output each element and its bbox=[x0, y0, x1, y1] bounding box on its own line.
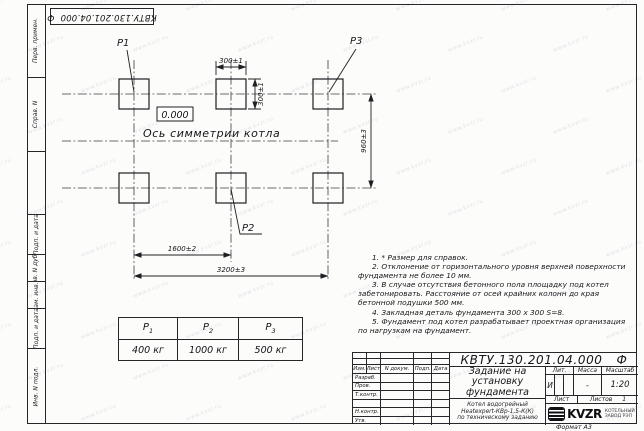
signature-cell bbox=[432, 391, 449, 399]
title-block-right-section: Лит. Масса Масштаб И - 1:20 Лист Листов … bbox=[546, 367, 638, 425]
signature-label: Пров. bbox=[353, 383, 381, 391]
revision-cell bbox=[432, 359, 449, 364]
title-block: Изм. Лист N докум. Подп. Дата Разраб. Пр… bbox=[352, 352, 637, 424]
load-value-p2: 1000 кг bbox=[178, 340, 239, 361]
side-stamp-column: Перв. примен. Справ. N Подп. и дата Инв.… bbox=[27, 4, 45, 424]
top-doc-number-stamp: КВТУ.130.201.04.000 Ф bbox=[50, 8, 154, 25]
notes-block: 1. * Размер для справок. 2. Отклонение о… bbox=[358, 253, 632, 335]
signature-cell bbox=[414, 374, 432, 382]
side-stamp-inv-dubl: Инв. N дубл. bbox=[27, 255, 45, 282]
signature-cell bbox=[414, 391, 432, 399]
signature-row-nkontr: Н.контр. bbox=[353, 408, 449, 417]
signature-cell bbox=[414, 400, 432, 408]
load-table: P1 P2 P3 400 кг 1000 кг 500 кг bbox=[118, 317, 303, 361]
signature-label: Н.контр. bbox=[353, 408, 381, 416]
load-header-p1: P1 bbox=[119, 318, 178, 340]
revision-header-docnum: N докум. bbox=[381, 365, 415, 373]
lit-mass-scale-header: Лит. Масса Масштаб bbox=[546, 367, 638, 375]
signature-cell bbox=[381, 408, 415, 416]
load-table-header-row: P1 P2 P3 bbox=[119, 318, 303, 340]
lit-mass-scale-values: И - 1:20 bbox=[546, 375, 638, 396]
subtitle-line: Котел водогрейный bbox=[467, 402, 528, 409]
revision-header-list: Лист bbox=[367, 365, 381, 373]
signature-label: Т.контр. bbox=[353, 391, 381, 399]
inner-frame-line bbox=[45, 4, 46, 424]
side-stamp-podp-data-1: Подп. и дата bbox=[27, 215, 45, 255]
lit-cell-2 bbox=[555, 375, 564, 395]
doc-number-suffix: Ф bbox=[617, 353, 628, 367]
side-stamp-label: Взам. инв. N bbox=[33, 282, 40, 309]
signature-cell bbox=[432, 374, 449, 382]
watermark-text: www.kvzr.ru bbox=[0, 75, 12, 95]
signature-cell bbox=[432, 417, 449, 426]
load-table-value-row: 400 кг 1000 кг 500 кг bbox=[119, 340, 303, 361]
load-value-p3: 500 кг bbox=[239, 340, 303, 361]
revision-cell bbox=[414, 353, 432, 358]
sheets-count: Листов 1 bbox=[578, 396, 638, 403]
sheet-label: Лист bbox=[546, 396, 578, 403]
signature-cell bbox=[414, 408, 432, 416]
revision-cell bbox=[414, 359, 432, 364]
signature-cell bbox=[414, 383, 432, 391]
revision-cell bbox=[353, 353, 367, 358]
note-1: 1. * Размер для справок. bbox=[358, 253, 632, 262]
signature-cell bbox=[381, 383, 415, 391]
signature-cell bbox=[381, 417, 415, 426]
revision-cell bbox=[367, 359, 381, 364]
side-stamp-label: Перв. примен. bbox=[33, 18, 40, 63]
side-stamp-label: Справ. N bbox=[33, 101, 40, 128]
note-4: 4. Закладная деталь фундамента 300 х 300… bbox=[358, 308, 632, 317]
manufacturer-logo-row: KVZR КОТЕЛЬНЫЙ ЗАВОД РЭП bbox=[546, 404, 638, 424]
signature-cell bbox=[432, 383, 449, 391]
signature-cell bbox=[381, 400, 415, 408]
revision-cell bbox=[367, 353, 381, 358]
subtitle-line: по техническому заданию bbox=[457, 415, 538, 422]
lit-value: И bbox=[546, 375, 555, 395]
side-stamp-label: Подп. и дата bbox=[33, 309, 40, 349]
signature-label: Утв. bbox=[353, 417, 381, 426]
side-stamp-label: Подп. и дата bbox=[33, 215, 40, 255]
revision-cell bbox=[353, 359, 367, 364]
logo-caption-line: ЗАВОД РЭП bbox=[605, 414, 635, 419]
signature-cell bbox=[432, 408, 449, 416]
side-stamp-perv-primen: Перв. примен. bbox=[27, 4, 45, 78]
side-stamp-label: Инв. N дубл. bbox=[33, 255, 40, 282]
signature-row-tkontr: Т.контр. bbox=[353, 391, 449, 400]
top-doc-number-text: КВТУ.130.201.04.000 Ф bbox=[47, 12, 157, 22]
sheets-label: Листов bbox=[590, 396, 612, 403]
load-value-p1: 400 кг bbox=[119, 340, 178, 361]
sheet-count-row: Лист Листов 1 bbox=[546, 396, 638, 404]
load-header-p2: P2 bbox=[178, 318, 239, 340]
mass-value: - bbox=[574, 375, 602, 395]
side-stamp-vzam-inv: Взам. инв. N bbox=[27, 282, 45, 309]
signature-label bbox=[353, 400, 381, 408]
watermark-text: www.kvzr.ru bbox=[0, 321, 12, 341]
watermark-text: www.kvzr.ru bbox=[0, 0, 12, 13]
mass-label: Масса bbox=[574, 367, 602, 374]
note-3: 3. В случае отсутствия бетонного пола пл… bbox=[358, 280, 632, 307]
revision-header-izm: Изм. bbox=[353, 365, 367, 373]
signature-label: Разраб. bbox=[353, 374, 381, 382]
signature-cell bbox=[432, 400, 449, 408]
revision-cell bbox=[432, 353, 449, 358]
title-block-signature-grid: Изм. Лист N докум. Подп. Дата Разраб. Пр… bbox=[353, 353, 450, 425]
doc-number-text: КВТУ.130.201.04.000 bbox=[461, 353, 603, 367]
watermark-text: www.kvzr.ru bbox=[0, 157, 12, 177]
side-stamp-label: Инв. N подл. bbox=[33, 367, 40, 407]
signature-row-razrab: Разраб. bbox=[353, 374, 449, 383]
side-stamp-spacer bbox=[27, 152, 45, 215]
subtitle-line: Heatexpert-КВр-1,5-К(К) bbox=[461, 409, 534, 416]
signature-cell bbox=[414, 417, 432, 426]
drawing-subtitle: Котел водогрейный Heatexpert-КВр-1,5-К(К… bbox=[450, 399, 546, 425]
kvzr-logo-icon bbox=[549, 408, 564, 420]
watermark-text: www.kvzr.ru bbox=[0, 403, 12, 423]
drawing-sheet: www.kvzr.ruwww.kvzr.ruwww.kvzr.ruwww.kvz… bbox=[0, 0, 644, 430]
scale-value: 1:20 bbox=[602, 375, 638, 395]
revision-header-data: Дата bbox=[432, 365, 449, 373]
note-5: 5. Фундамент под котел разрабатывает про… bbox=[358, 317, 632, 335]
lit-label: Лит. bbox=[546, 367, 574, 374]
revision-header-podp: Подп. bbox=[414, 365, 432, 373]
signature-row-blank bbox=[353, 400, 449, 409]
kvzr-logo-caption: КОТЕЛЬНЫЙ ЗАВОД РЭП bbox=[605, 409, 635, 419]
note-2: 2. Отклонение от горизонтального уровня … bbox=[358, 262, 632, 280]
watermark-text: www.kvzr.ru bbox=[0, 239, 12, 259]
signature-row-prov: Пров. bbox=[353, 383, 449, 392]
signature-cell bbox=[381, 374, 415, 382]
scale-label: Масштаб bbox=[602, 367, 638, 374]
signature-cell bbox=[381, 391, 415, 399]
signature-row-utv: Утв. bbox=[353, 417, 449, 426]
lit-cell-3 bbox=[564, 375, 574, 395]
side-stamp-sprav-n: Справ. N bbox=[27, 78, 45, 152]
doc-number: КВТУ.130.201.04.000 Ф bbox=[450, 353, 638, 367]
revision-cell bbox=[381, 359, 415, 364]
revision-cell bbox=[381, 353, 415, 358]
side-stamp-podp-data-2: Подп. и дата bbox=[27, 309, 45, 349]
sheets-value: 1 bbox=[622, 396, 626, 403]
revision-header-row: Изм. Лист N докум. Подп. Дата bbox=[353, 365, 449, 374]
side-stamp-inv-podl: Инв. N подл. bbox=[27, 349, 45, 424]
drawing-title: Задание на установку фундамента bbox=[450, 367, 546, 399]
load-header-p3: P3 bbox=[239, 318, 303, 340]
kvzr-logo-text: KVZR bbox=[567, 407, 602, 421]
